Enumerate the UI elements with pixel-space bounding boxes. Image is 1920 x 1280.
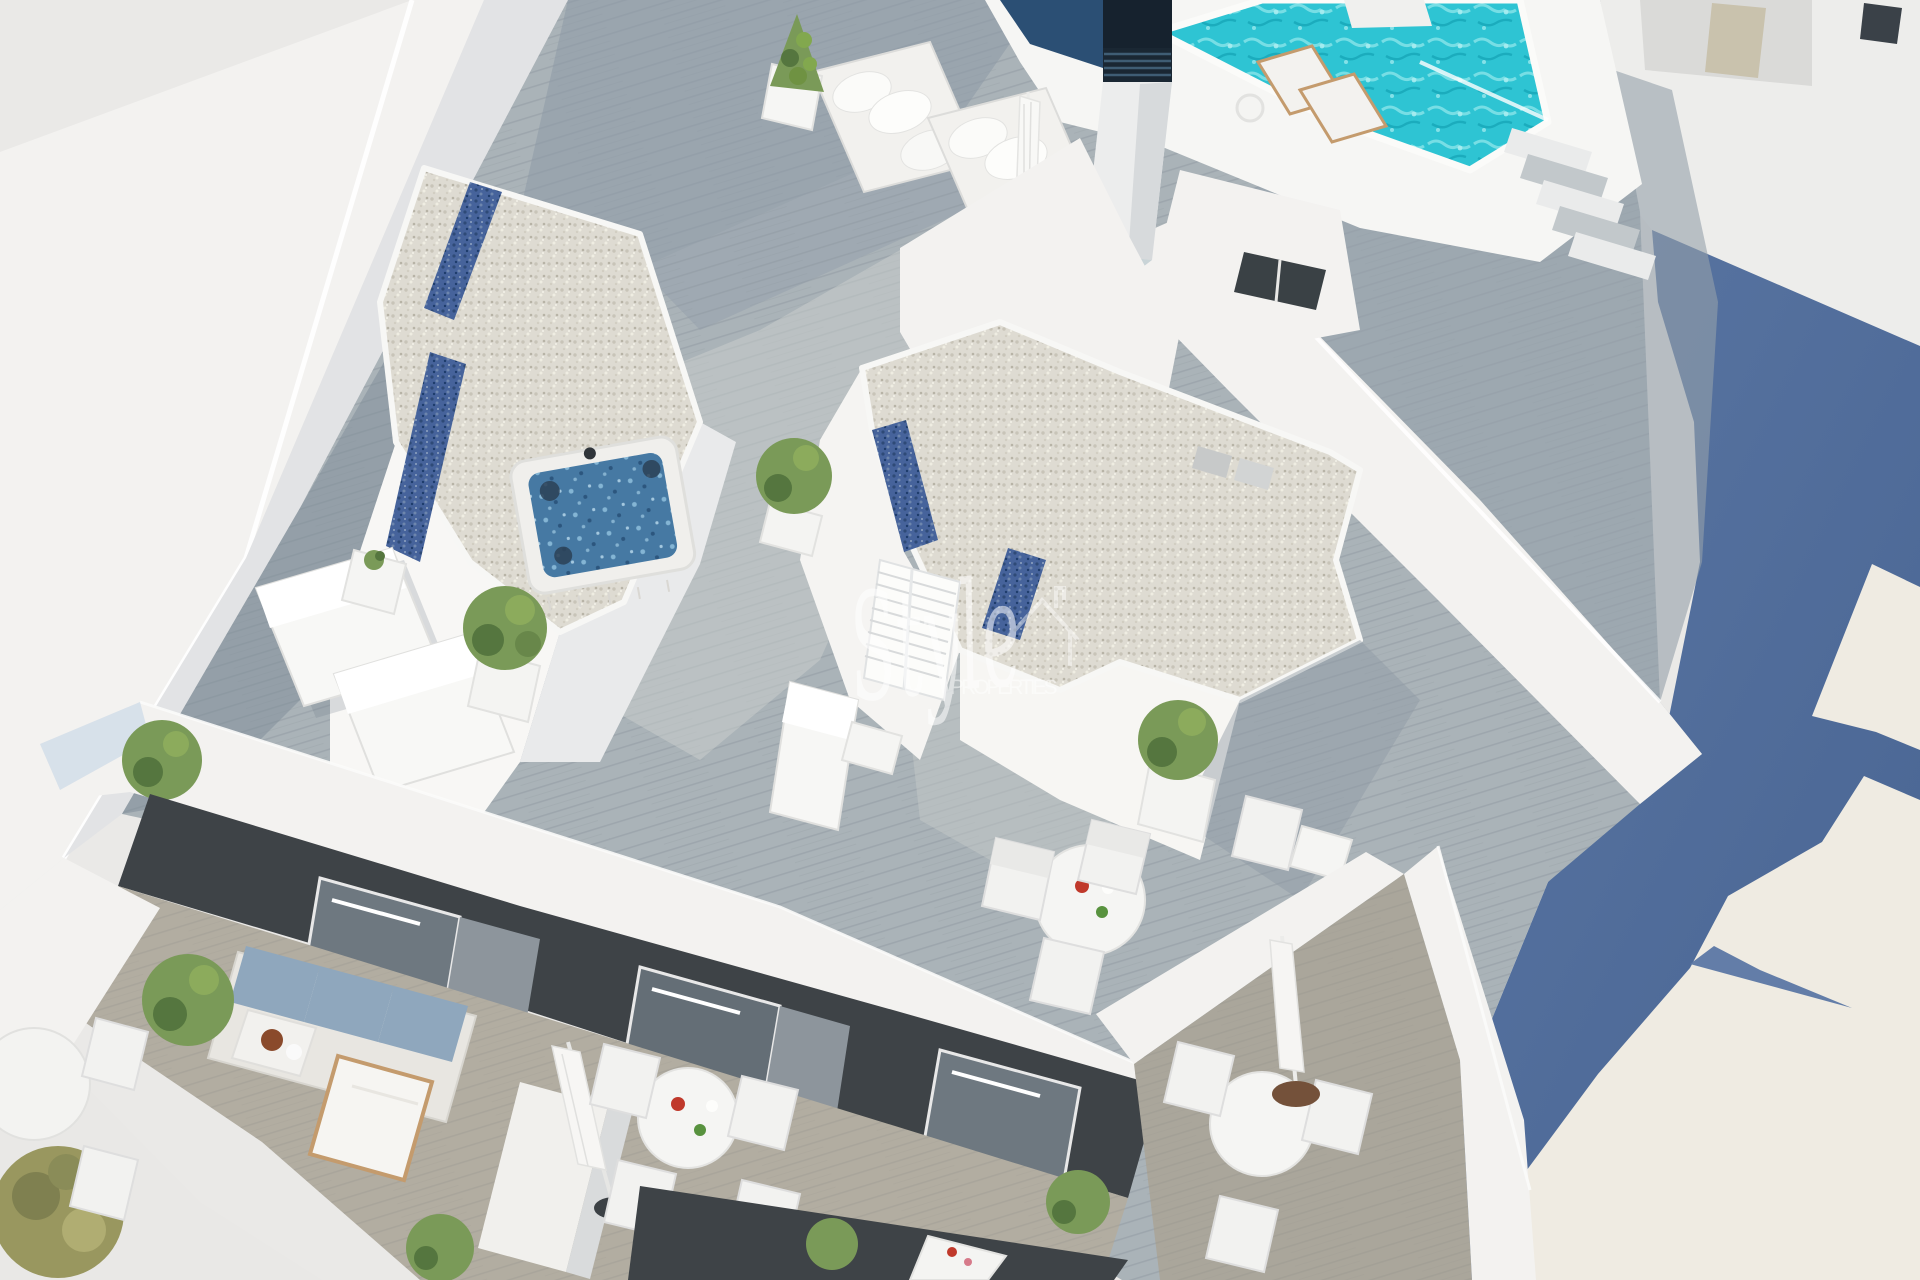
chair bbox=[590, 1044, 660, 1118]
small-window bbox=[1860, 3, 1902, 44]
side-table bbox=[1237, 95, 1263, 121]
umbrella-pot bbox=[1272, 1081, 1320, 1107]
parapet-bush bbox=[122, 720, 202, 800]
watermark-caps-text: PROPERTIES bbox=[950, 676, 1062, 699]
chair bbox=[1164, 1042, 1234, 1116]
fruit-bowl bbox=[261, 1029, 283, 1051]
green-dish bbox=[1096, 906, 1108, 918]
rooftop-render: Aerial 3D rendering of a new-build apart… bbox=[0, 0, 1920, 1280]
pool-spa-ledge bbox=[1344, 0, 1432, 28]
beige-door bbox=[1705, 3, 1766, 78]
chair bbox=[728, 1076, 798, 1150]
chair bbox=[1206, 1196, 1278, 1272]
render-canvas: Aerial 3D rendering of a new-build apart… bbox=[0, 0, 1920, 1280]
potted-bush bbox=[142, 954, 234, 1046]
bush bbox=[806, 1218, 858, 1270]
watermark-script-text: Style bbox=[842, 547, 1029, 736]
bush bbox=[1046, 1170, 1110, 1234]
bush bbox=[406, 1214, 474, 1280]
chair bbox=[1030, 938, 1104, 1014]
